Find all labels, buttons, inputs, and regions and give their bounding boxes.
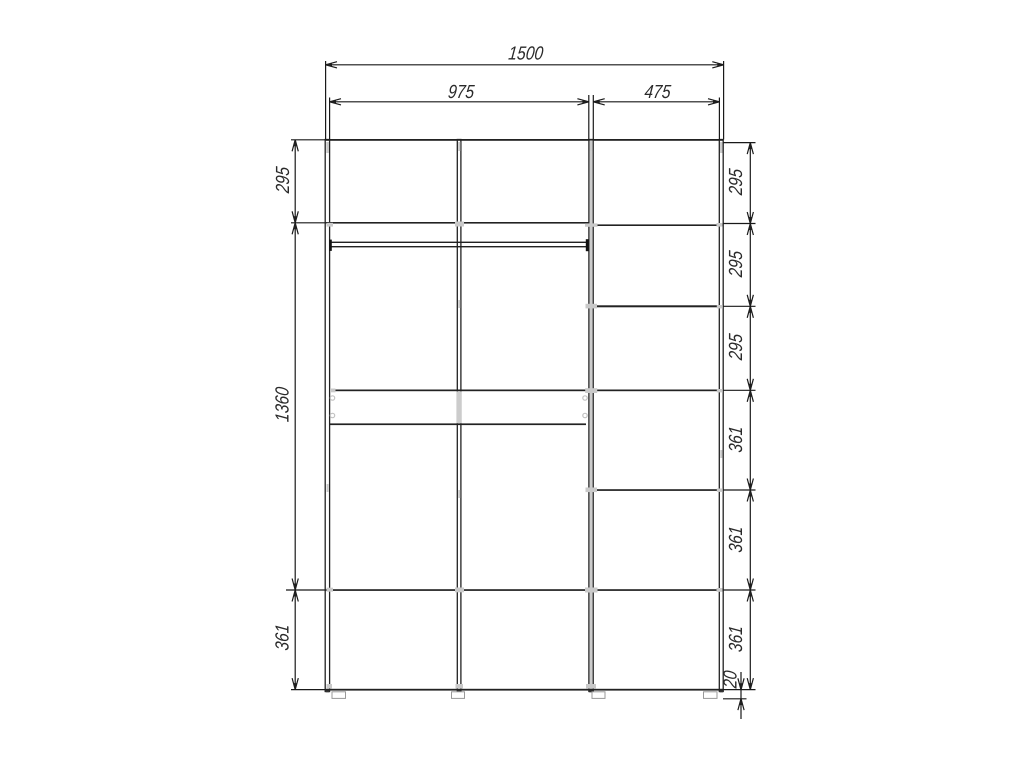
svg-text:1360: 1360 (271, 386, 293, 423)
svg-text:361: 361 (725, 525, 747, 553)
svg-text:295: 295 (272, 165, 294, 194)
svg-text:475: 475 (644, 80, 673, 102)
svg-text:20: 20 (719, 669, 741, 690)
svg-text:361: 361 (271, 623, 293, 651)
svg-text:1500: 1500 (507, 42, 544, 64)
svg-text:361: 361 (725, 425, 747, 453)
svg-text:361: 361 (725, 625, 747, 653)
svg-text:295: 295 (725, 249, 747, 278)
svg-text:295: 295 (725, 167, 747, 196)
svg-text:295: 295 (725, 332, 747, 361)
svg-text:975: 975 (447, 80, 476, 102)
